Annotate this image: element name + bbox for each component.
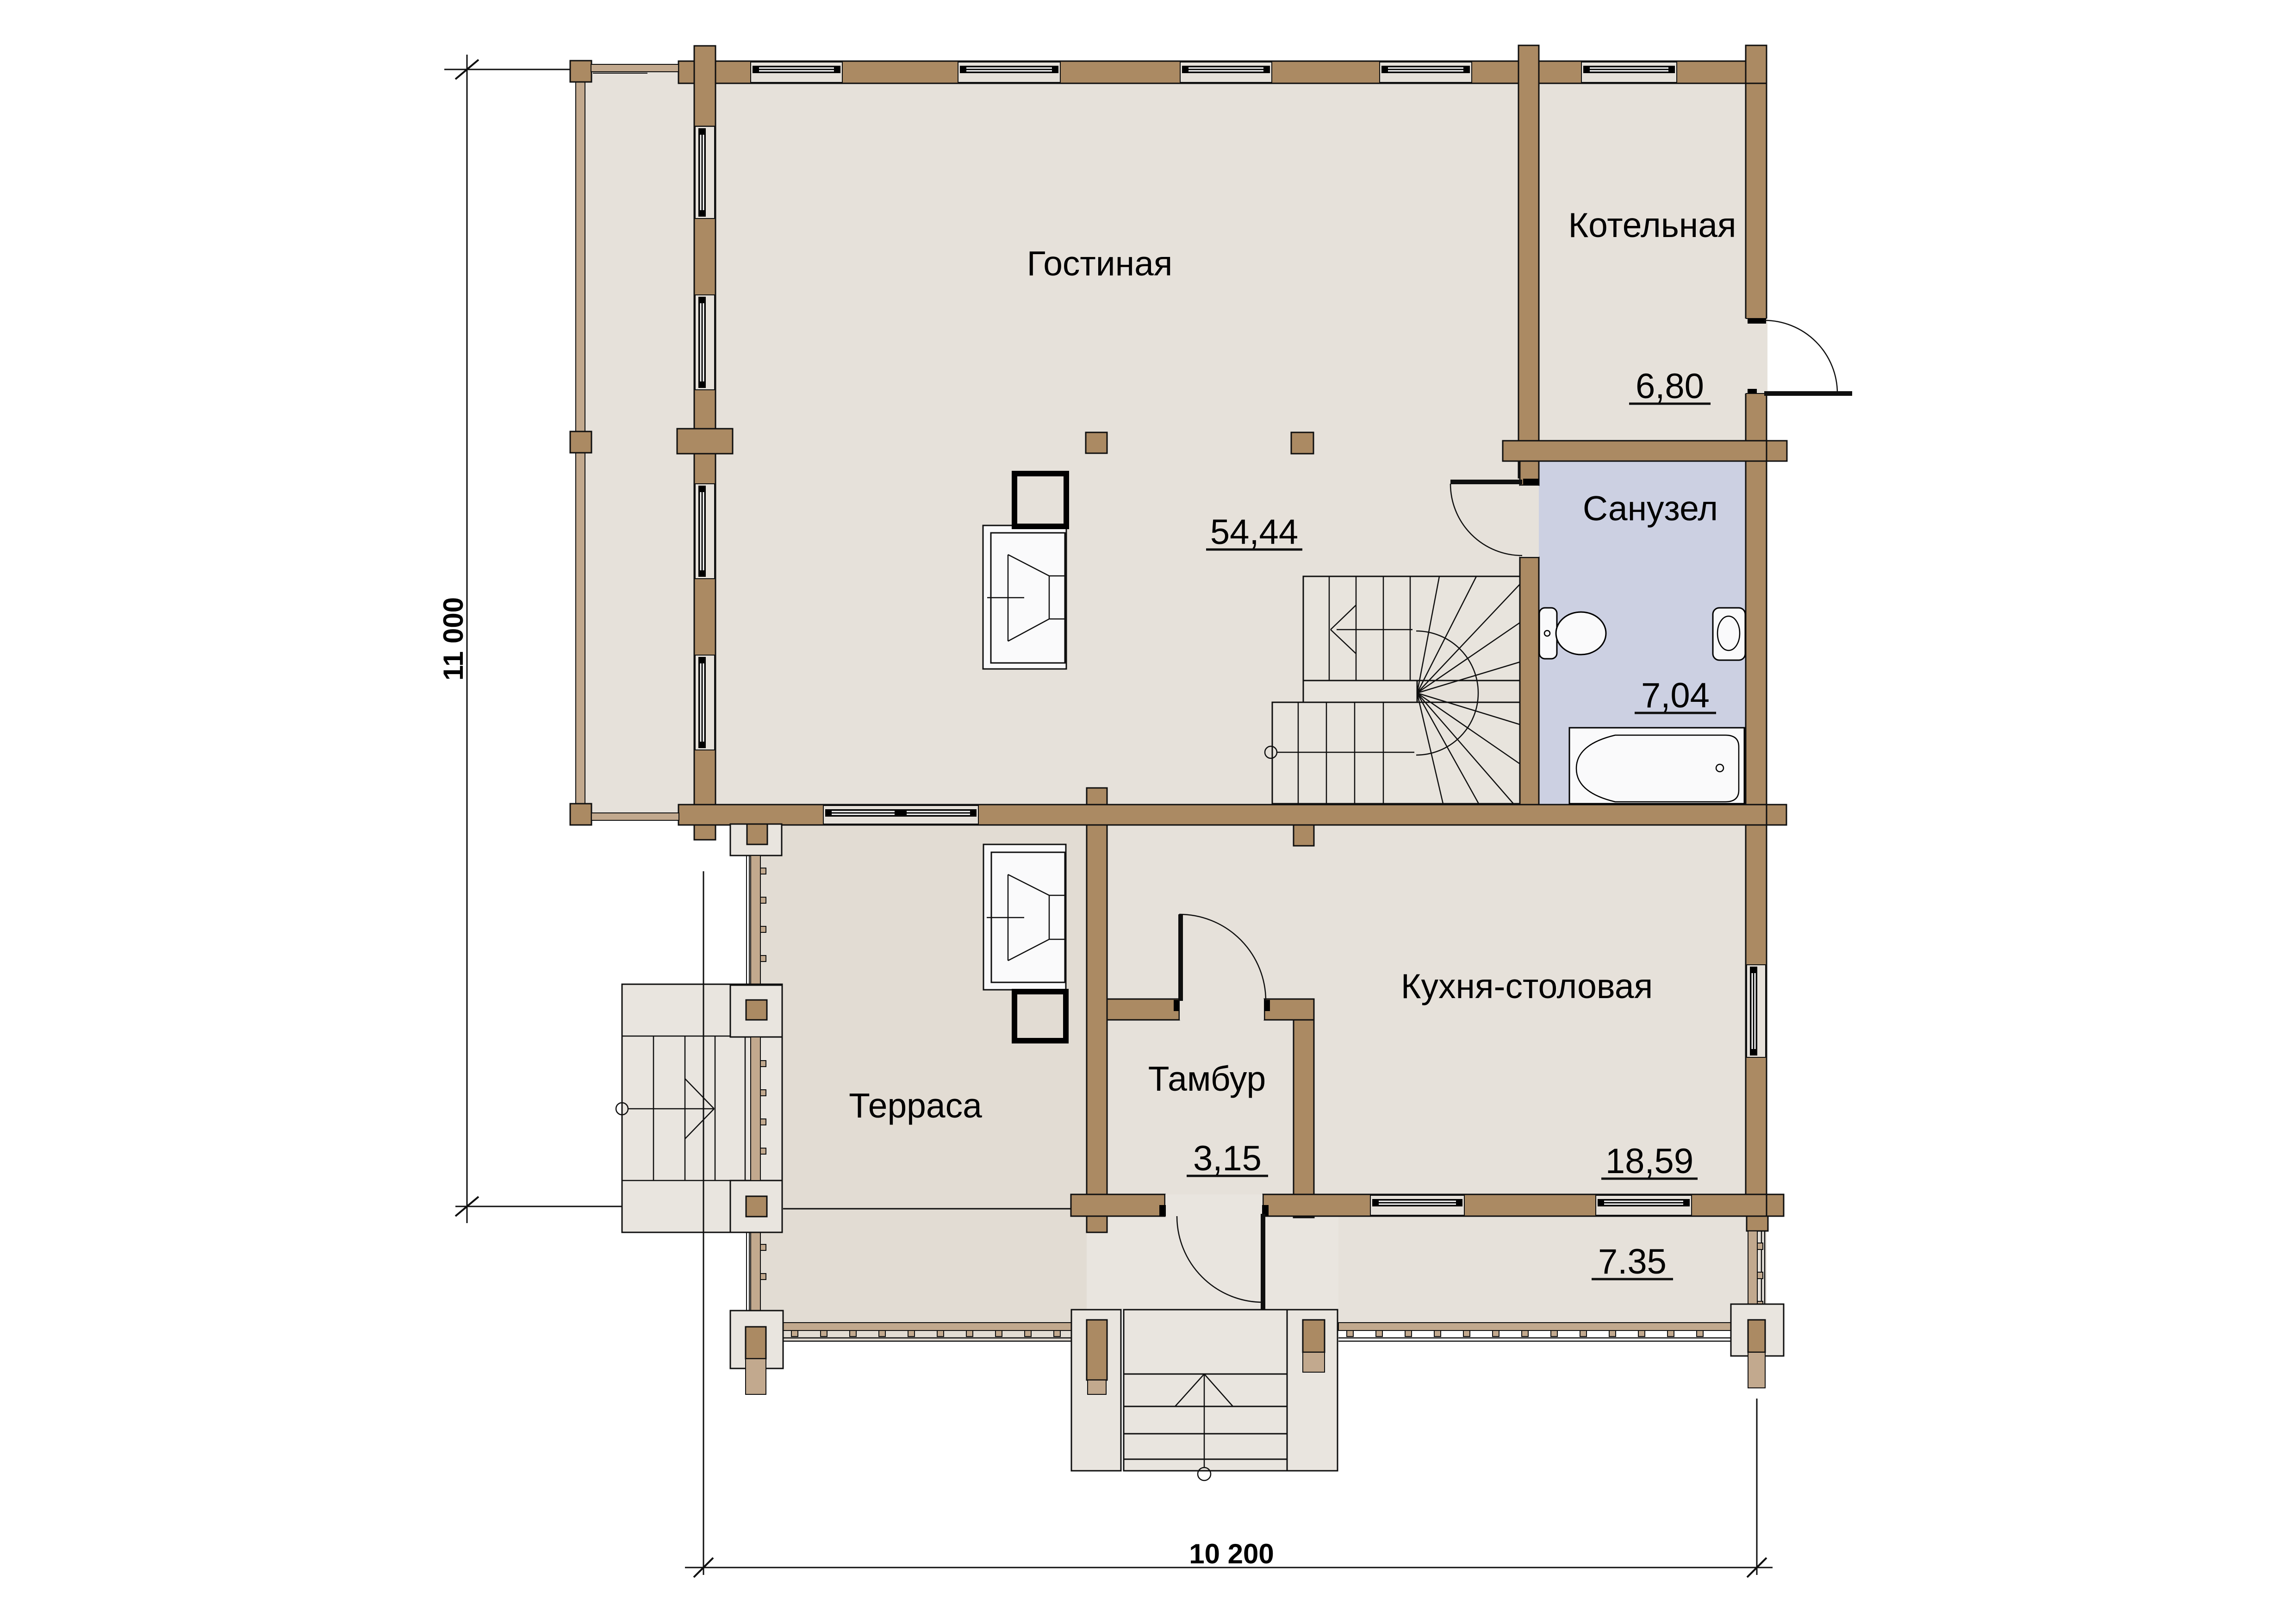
svg-text:Кухня-столовая: Кухня-столовая [1401,967,1653,1006]
svg-text:Санузел: Санузел [1583,489,1718,528]
svg-text:6,80: 6,80 [1636,367,1704,406]
svg-text:Терраса: Терраса [849,1086,982,1125]
svg-text:11 000: 11 000 [438,597,469,681]
svg-text:Гостиная: Гостиная [1027,244,1173,283]
svg-text:7,04: 7,04 [1641,676,1710,715]
svg-text:18,59: 18,59 [1605,1142,1693,1181]
svg-text:54,44: 54,44 [1210,512,1298,552]
svg-text:Тамбур: Тамбур [1148,1059,1266,1098]
svg-text:Котельная: Котельная [1568,206,1736,244]
svg-text:7.35: 7.35 [1598,1242,1667,1281]
svg-text:10 200: 10 200 [1189,1538,1274,1569]
svg-text:3,15: 3,15 [1193,1139,1262,1178]
